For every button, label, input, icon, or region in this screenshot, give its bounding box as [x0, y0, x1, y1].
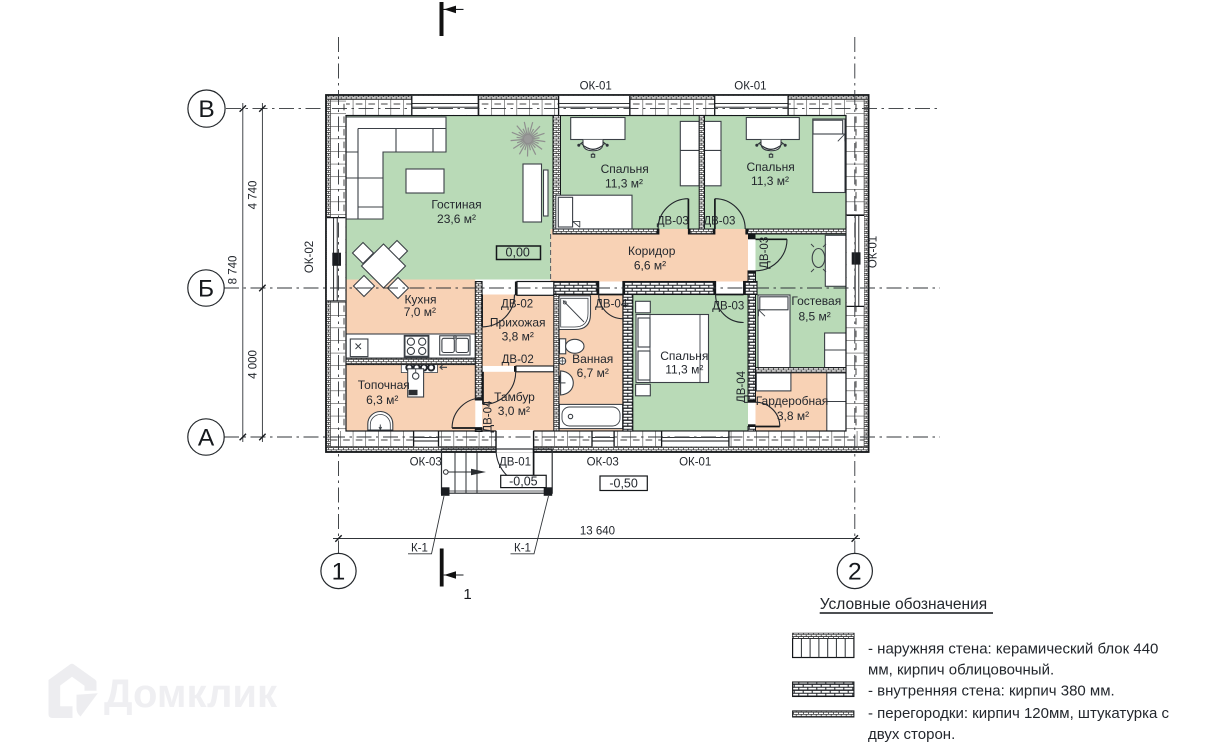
svg-text:В: В — [198, 96, 214, 123]
svg-text:ОК-03: ОК-03 — [410, 456, 442, 468]
svg-text:- наружняя стена: керамический: - наружняя стена: керамический блок 440 — [868, 640, 1158, 657]
svg-text:2: 2 — [848, 558, 862, 585]
svg-text:К-1: К-1 — [411, 543, 428, 555]
svg-text:3,0 м²: 3,0 м² — [498, 404, 530, 418]
svg-text:ДВ-04: ДВ-04 — [483, 400, 495, 433]
svg-text:-0,05: -0,05 — [509, 475, 538, 489]
svg-text:- перегородки: кирпич 120мм, ш: - перегородки: кирпич 120мм, штукатурка … — [868, 705, 1170, 722]
svg-text:ОК-02: ОК-02 — [304, 241, 316, 273]
svg-text:-0,50: -0,50 — [609, 477, 638, 491]
svg-text:23,6 м²: 23,6 м² — [437, 212, 476, 226]
svg-text:ОК-01: ОК-01 — [679, 456, 711, 468]
svg-text:11,3 м²: 11,3 м² — [605, 177, 643, 191]
svg-text:- внутренняя стена: кирпич 380: - внутренняя стена: кирпич 380 мм. — [868, 683, 1115, 700]
svg-text:7,0 м²: 7,0 м² — [404, 305, 436, 319]
svg-text:ДВ-04: ДВ-04 — [595, 298, 628, 310]
svg-text:13 640: 13 640 — [580, 526, 615, 538]
svg-text:3,8 м²: 3,8 м² — [777, 409, 809, 423]
svg-text:11,3 м²: 11,3 м² — [751, 174, 789, 188]
svg-text:0,00: 0,00 — [506, 246, 530, 260]
svg-text:двух сторон.: двух сторон. — [868, 726, 955, 743]
svg-text:6,7 м²: 6,7 м² — [577, 366, 609, 380]
svg-text:мм, кирпич облицовочный.: мм, кирпич облицовочный. — [868, 662, 1054, 679]
svg-text:4 740: 4 740 — [248, 181, 260, 210]
svg-text:Гостевая: Гостевая — [791, 294, 841, 308]
svg-text:Домклик: Домклик — [104, 672, 278, 716]
svg-text:А: А — [198, 424, 215, 451]
svg-text:Б: Б — [198, 275, 214, 302]
svg-text:ДВ-03: ДВ-03 — [657, 215, 689, 227]
svg-text:Топочная: Топочная — [358, 378, 410, 392]
svg-text:ДВ-04: ДВ-04 — [736, 370, 748, 403]
svg-text:Гостиная: Гостиная — [431, 197, 481, 211]
svg-text:ДВ-03: ДВ-03 — [712, 301, 744, 313]
svg-text:3,8 м²: 3,8 м² — [502, 329, 534, 343]
svg-text:Спальня: Спальня — [746, 160, 794, 174]
svg-text:11,3 м²: 11,3 м² — [665, 363, 703, 377]
svg-text:1: 1 — [463, 586, 471, 603]
svg-text:ДВ-03: ДВ-03 — [703, 215, 735, 227]
svg-text:Тамбур: Тамбур — [494, 390, 535, 404]
svg-text:ОК-03: ОК-03 — [587, 456, 619, 468]
svg-text:6,6 м²: 6,6 м² — [634, 258, 666, 272]
svg-text:ДВ-02: ДВ-02 — [502, 354, 534, 366]
svg-text:1: 1 — [332, 558, 346, 585]
svg-text:Прихожая: Прихожая — [490, 316, 546, 330]
svg-text:6,3 м²: 6,3 м² — [366, 393, 398, 407]
svg-text:Спальня: Спальня — [601, 162, 649, 176]
svg-text:Спальня: Спальня — [660, 349, 708, 363]
svg-text:К-1: К-1 — [514, 543, 531, 555]
svg-text:8 740: 8 740 — [228, 256, 240, 285]
svg-text:ОК-01: ОК-01 — [734, 80, 766, 92]
svg-text:8,5 м²: 8,5 м² — [798, 310, 830, 324]
svg-text:Условные обозначения: Условные обозначения — [820, 596, 987, 613]
svg-text:ОК-01: ОК-01 — [580, 80, 612, 92]
svg-text:Коридор: Коридор — [628, 244, 676, 258]
svg-text:4 000: 4 000 — [248, 350, 260, 379]
svg-text:ОК-01: ОК-01 — [868, 236, 880, 268]
svg-text:Гардеробная: Гардеробная — [756, 394, 829, 408]
svg-text:Ванная: Ванная — [572, 352, 613, 366]
svg-text:ДВ-02: ДВ-02 — [501, 298, 533, 310]
svg-text:ДВ-01: ДВ-01 — [499, 456, 531, 468]
svg-text:ДВ-03: ДВ-03 — [759, 237, 771, 269]
